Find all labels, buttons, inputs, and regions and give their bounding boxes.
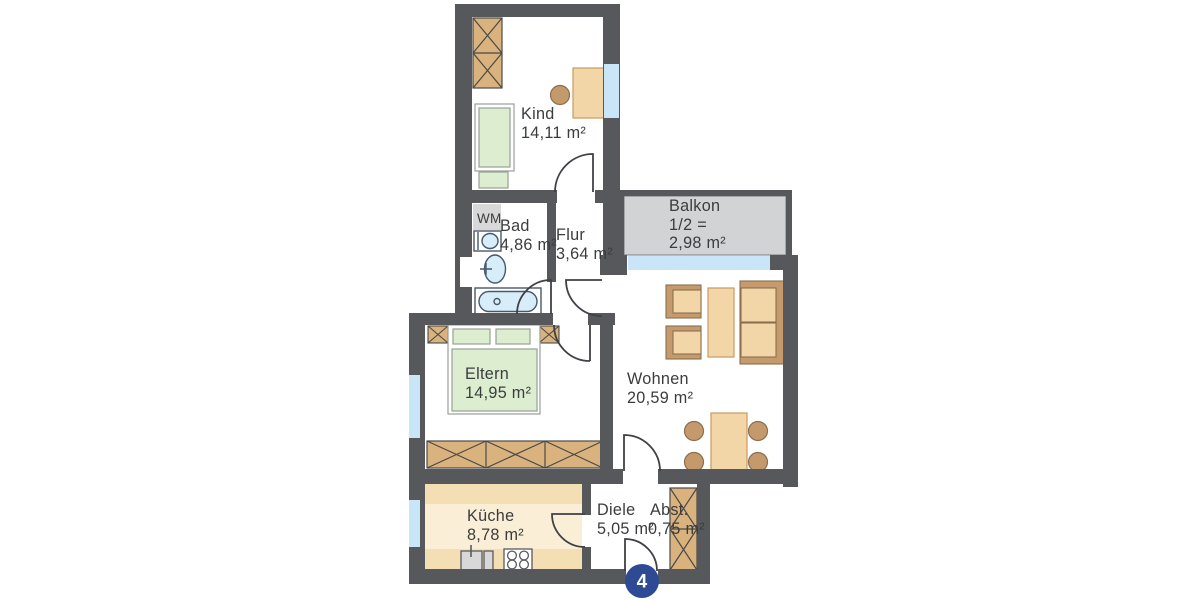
room-area: 14,11 m² [521,124,586,142]
bed-pillow [453,329,490,344]
armchair-seat [673,290,701,313]
window-eltern [409,375,420,438]
room-name: Diele [597,501,635,519]
room-name: Wohnen [627,370,689,388]
room-label-wohnen: Wohnen 20,59 m² [627,370,694,407]
door-wohnen-flur [566,280,602,316]
wall-segment [658,569,710,584]
room-area: 14,95 m² [465,384,532,402]
bed-bench [479,172,508,188]
room-area: 8,78 m² [467,526,524,544]
unit-badge: 4 [625,564,659,598]
toilet-icon [474,231,501,251]
armchair-icon [666,326,701,359]
door-wohnen-diele [624,435,660,471]
wall-segment [603,4,620,258]
wall-segment [783,255,798,487]
washing-machine-label: WM [477,211,502,226]
wardrobe-icon [427,441,603,468]
bathtub-icon [475,288,541,315]
wall-segment [409,469,623,484]
room-name: Bad [500,217,530,235]
wall-segment [582,484,591,515]
armchair-seat [673,331,701,354]
wall-segment [409,313,553,325]
stove-burner [520,560,529,569]
kind-furniture [473,18,604,188]
sink-drainer [484,551,493,570]
room-name: Kind [521,105,555,123]
chair-icon [749,453,768,472]
chair-icon [685,453,704,472]
kitchen-counter-top [425,484,582,504]
room-name: Balkon [669,197,720,215]
nightstand-icon [428,326,448,343]
bed-pillow [496,329,530,344]
room-name: Abst. [650,501,688,519]
sink-icon [480,255,506,283]
coffee-table-icon [708,288,734,357]
room-name: Eltern [465,365,509,383]
sofa-cushion [741,288,776,322]
armchair-icon [666,285,701,318]
window-kueche [409,500,420,547]
room-name: Flur [556,226,585,244]
room-area: 3,64 m² [556,245,613,263]
stove-icon [504,549,532,570]
wardrobe-icon [473,18,502,88]
balcony-parapet [618,190,792,196]
floor-plan-canvas: Kind 14,11 m² Bad 4,86 m² Flur 3,64 m² B… [0,0,1200,600]
floor-plan: Kind 14,11 m² Bad 4,86 m² Flur 3,64 m² B… [0,0,1200,600]
room-area: 4,86 m² [500,236,557,254]
chair-icon [749,422,768,441]
balcony-parapet [618,190,624,255]
sofa-icon [740,281,784,364]
stove-burner [520,551,529,560]
door-kind [555,154,593,192]
wall-segment [455,190,557,203]
wall-segment [600,315,613,471]
balcony-parapet [786,190,792,255]
desk-icon [573,68,604,118]
single-bed-icon [475,104,514,188]
window-balcony-door [628,256,770,270]
wall-segment [409,569,626,584]
room-area: 5,05 m² [597,520,654,538]
bathtub-basin [479,292,537,312]
desk-chair-icon [551,86,570,105]
room-area: 0,75 m² [648,520,705,538]
room-share: 1/2 = [669,216,707,234]
bed-mattress [479,108,510,167]
room-name: Küche [467,507,514,525]
stove-burner [508,560,517,569]
wall-segment [658,469,798,484]
sofa-cushion [741,323,776,357]
chair-icon [685,422,704,441]
room-area: 20,59 m² [627,389,694,407]
toilet-bowl [482,234,498,249]
dining-table-icon [711,413,747,472]
bad-wall-niche [460,257,472,287]
wall-segment [455,4,620,17]
window-kind [604,64,619,118]
room-label-diele: Diele 5,05 m² [597,501,654,538]
wall-segment [582,547,591,571]
unit-badge-number: 4 [637,572,648,593]
room-area: 2,98 m² [669,234,726,252]
wall-segment [770,255,798,270]
stove-burner [508,551,517,560]
